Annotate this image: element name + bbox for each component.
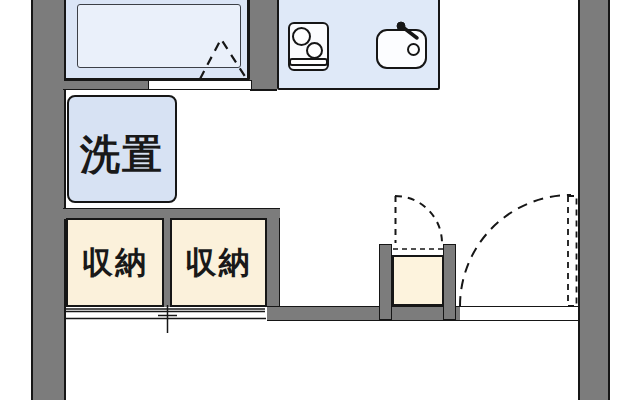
stove-burner-icon bbox=[306, 42, 323, 59]
entrance-door-leaf bbox=[568, 196, 577, 306]
wall-left bbox=[31, 0, 66, 400]
drain-icon bbox=[407, 43, 420, 56]
entrance-threshold bbox=[460, 306, 578, 321]
storage-closet-right: 収納 bbox=[170, 218, 267, 307]
wall-genkan-bottom bbox=[267, 306, 460, 321]
bathroom-door-opening bbox=[148, 80, 252, 90]
shoe-closet-wall-right bbox=[443, 244, 456, 320]
wall-above-storage bbox=[63, 208, 280, 219]
floorplan-canvas: 洗置 収納 収納 bbox=[0, 0, 640, 400]
shoe-closet-wall-left bbox=[379, 244, 392, 320]
stove-grill-icon bbox=[289, 58, 328, 66]
shoe-closet-interior bbox=[392, 255, 444, 306]
bathtub bbox=[77, 4, 241, 68]
shoe-closet-door-swing-arc bbox=[395, 196, 442, 243]
wall-right bbox=[578, 0, 610, 400]
wall-bathroom-kitchen-divider bbox=[250, 0, 277, 91]
wall-storage-right bbox=[267, 218, 280, 320]
storage-closet-left: 収納 bbox=[66, 218, 164, 307]
laundry-pan: 洗置 bbox=[67, 95, 177, 203]
entrance-door-swing-arc bbox=[460, 195, 571, 306]
wall-bathroom-bottom bbox=[63, 81, 148, 90]
